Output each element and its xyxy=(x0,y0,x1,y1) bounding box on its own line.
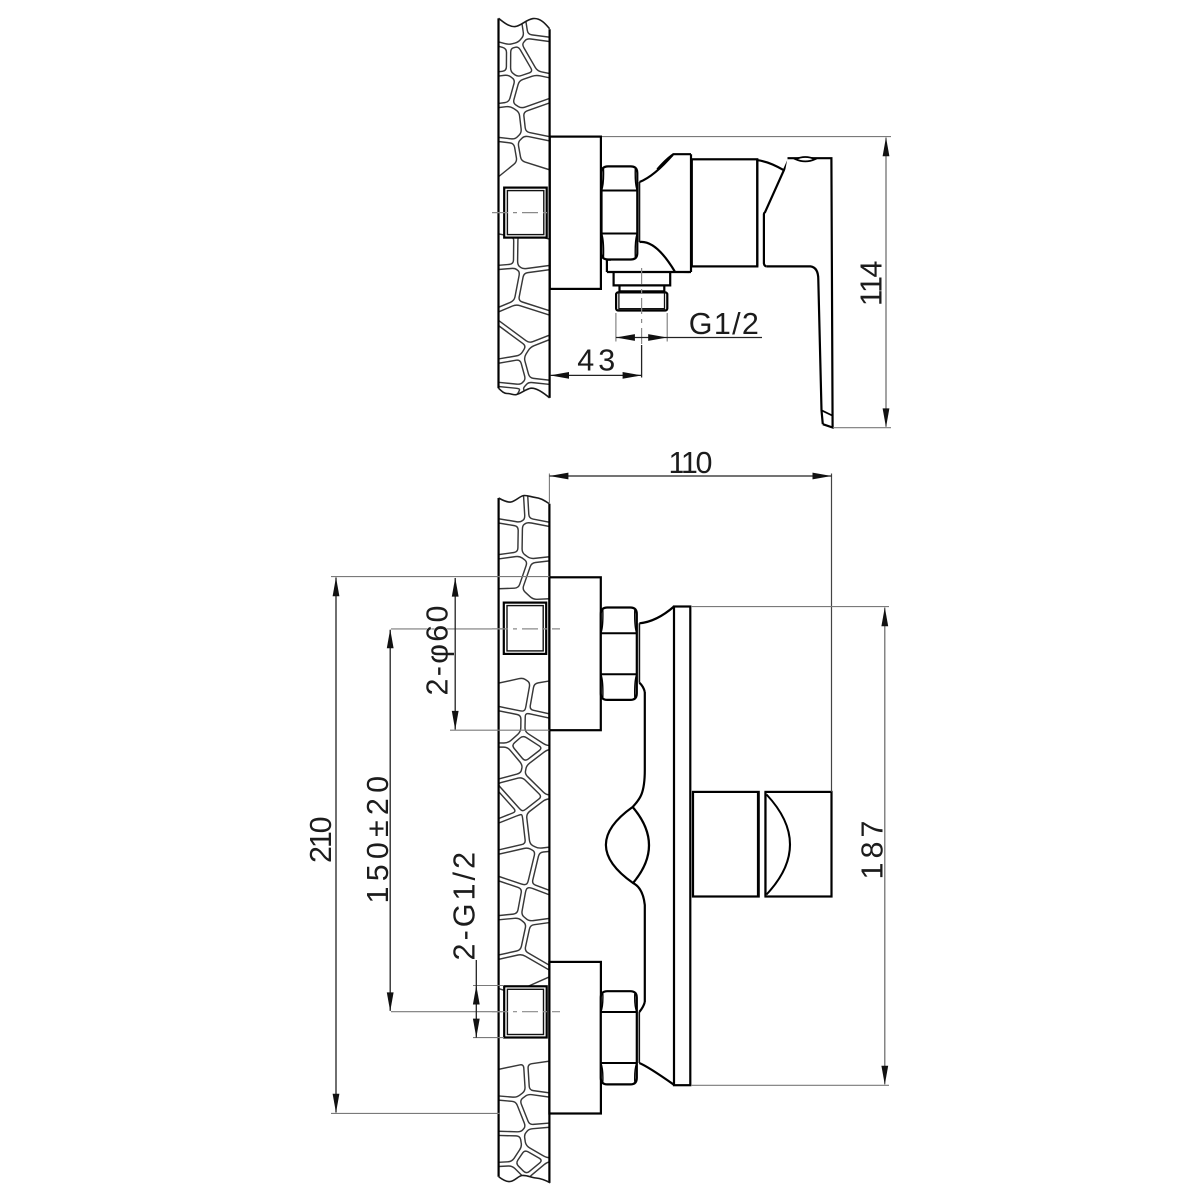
svg-text:187: 187 xyxy=(856,821,890,880)
svg-text:2-φ60: 2-φ60 xyxy=(421,606,455,696)
svg-text:114: 114 xyxy=(855,261,889,307)
svg-text:2-G1/2: 2-G1/2 xyxy=(448,852,482,961)
svg-text:G1/2: G1/2 xyxy=(689,307,759,341)
svg-text:210: 210 xyxy=(304,816,338,863)
svg-text:110: 110 xyxy=(669,446,713,480)
